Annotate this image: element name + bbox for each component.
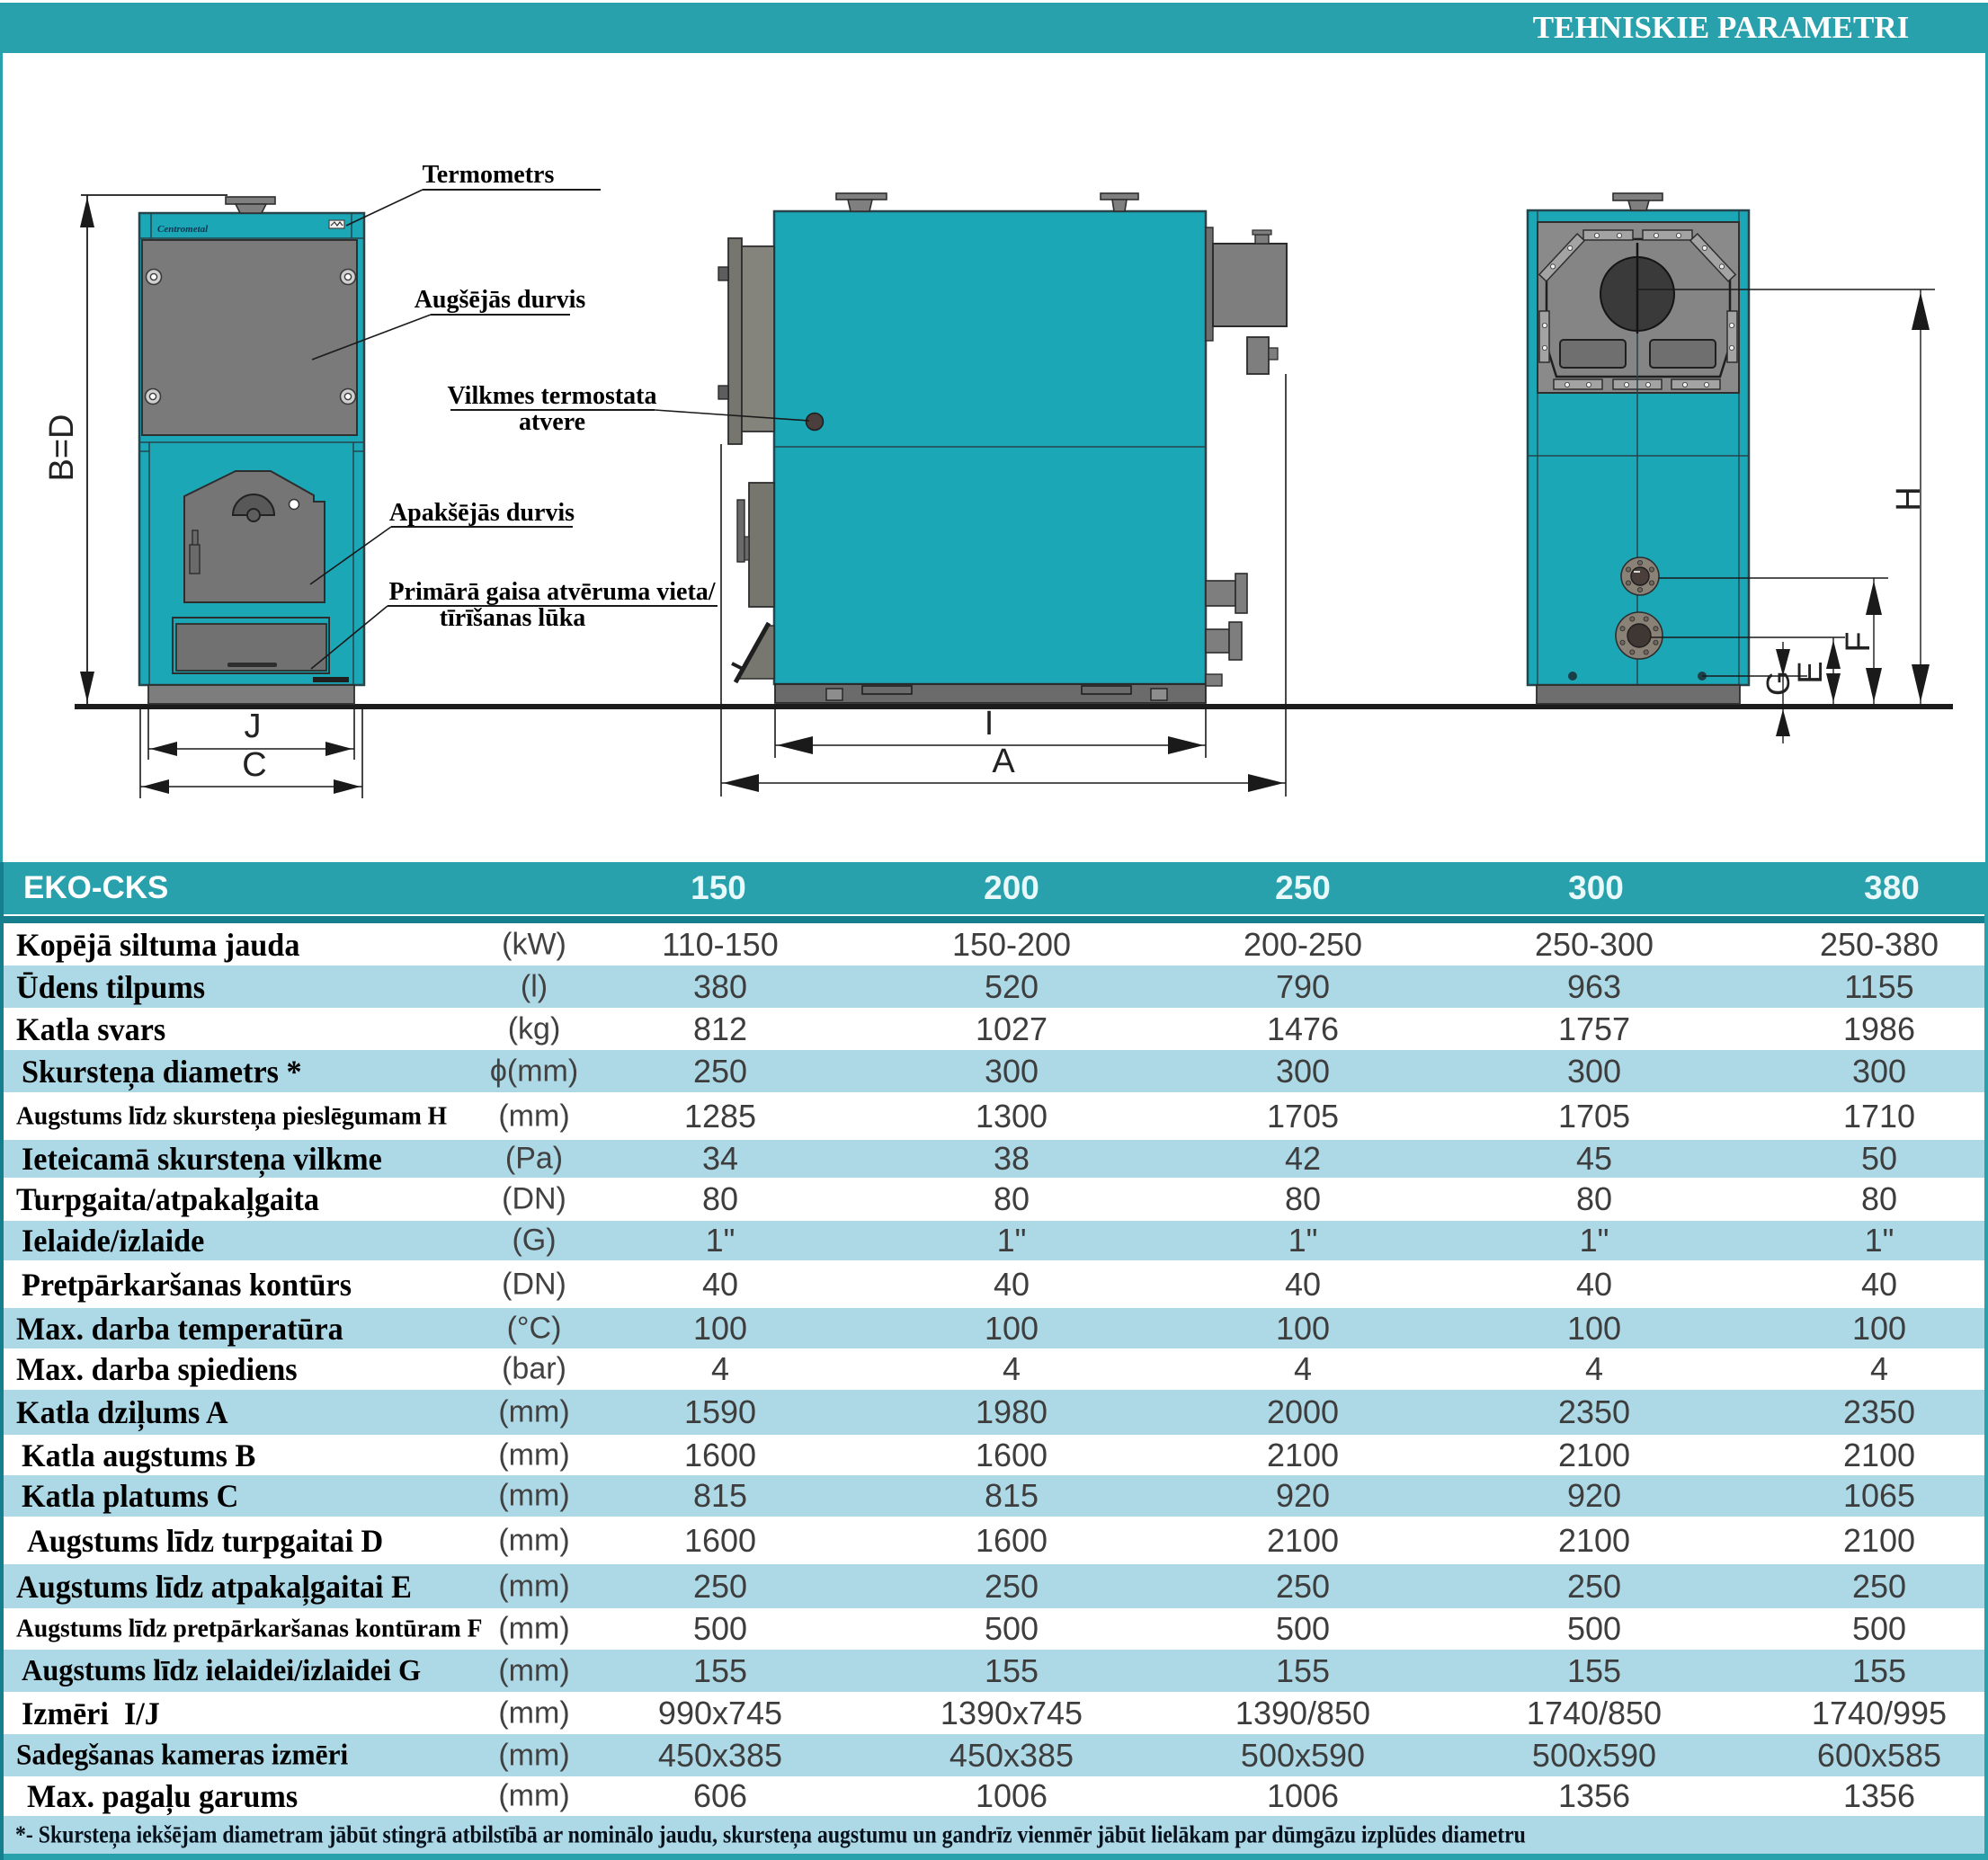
svg-text:tīrīšanas lūka: tīrīšanas lūka	[440, 604, 586, 632]
svg-text:Vilkmes termostata: Vilkmes termostata	[447, 382, 656, 410]
svg-text:J: J	[245, 708, 262, 745]
svg-text:Apakšējās durvis: Apakšējās durvis	[389, 499, 575, 527]
svg-text:Primārā gaisa atvēruma vieta/: Primārā gaisa atvēruma vieta/	[388, 578, 716, 606]
svg-text:Augšējās durvis: Augšējās durvis	[415, 286, 586, 314]
svg-text:E: E	[1792, 661, 1830, 683]
svg-text:H: H	[1890, 486, 1928, 511]
svg-text:I: I	[985, 705, 994, 743]
svg-text:atvere: atvere	[519, 408, 585, 436]
svg-text:F: F	[1840, 631, 1877, 652]
svg-text:B=D: B=D	[43, 414, 81, 482]
svg-text:Termometrs: Termometrs	[423, 161, 555, 189]
svg-text:A: A	[992, 743, 1015, 780]
svg-text:Centrometal: Centrometal	[157, 224, 209, 235]
svg-text:G: G	[1760, 671, 1796, 696]
svg-text:C: C	[242, 746, 266, 784]
